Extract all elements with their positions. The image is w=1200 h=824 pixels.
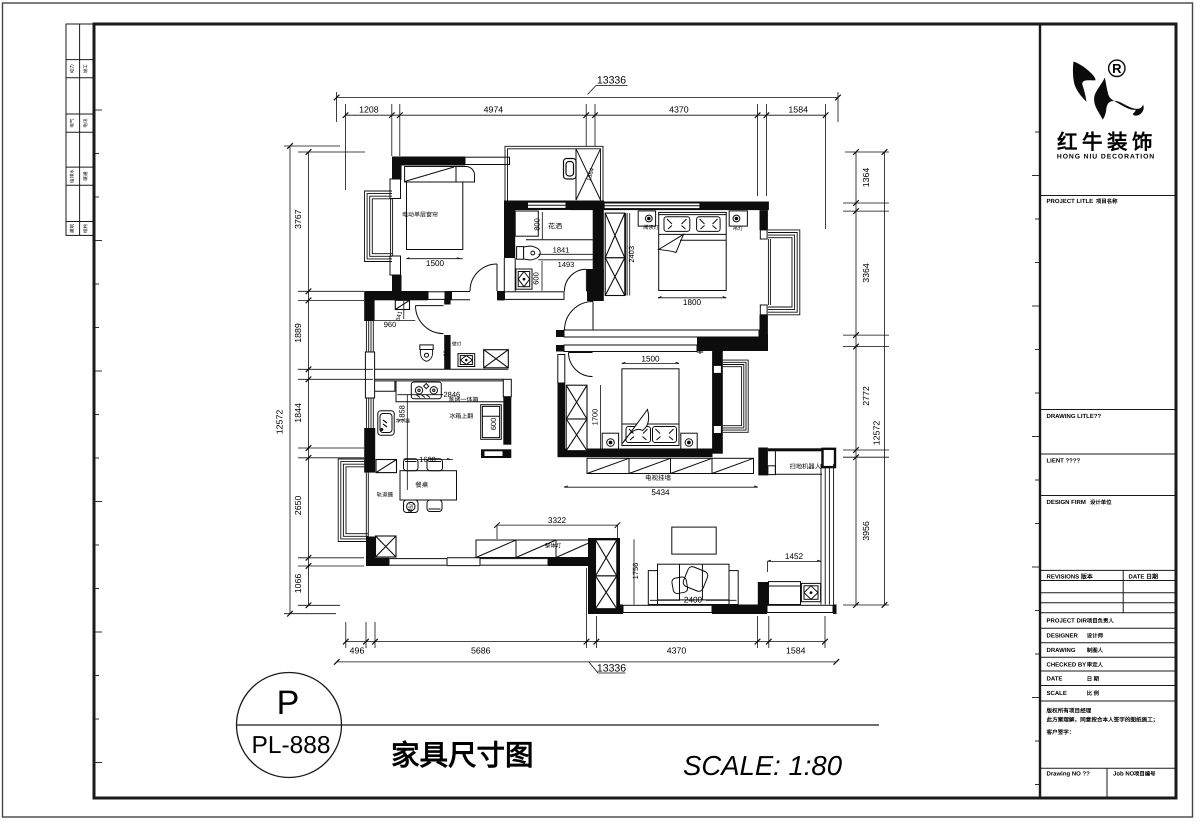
svg-text:1493: 1493 — [558, 260, 575, 269]
svg-text:客户签字：: 客户签字： — [1046, 729, 1075, 736]
svg-text:餐桌: 餐桌 — [415, 481, 429, 489]
svg-text:1452: 1452 — [785, 552, 804, 561]
svg-text:PROJECT DIR: PROJECT DIR — [1047, 618, 1088, 625]
svg-text:DRAWING: DRAWING — [1047, 647, 1076, 654]
svg-text:动力: 动力 — [70, 64, 75, 74]
svg-text:DESIGN FIRM: DESIGN FIRM — [1047, 499, 1086, 506]
svg-text:竣工: 竣工 — [83, 64, 88, 74]
svg-text:1364: 1364 — [861, 168, 871, 188]
svg-text:暖通: 暖通 — [83, 171, 88, 181]
svg-text:3364: 3364 — [861, 263, 871, 283]
svg-text:13336: 13336 — [597, 75, 626, 87]
svg-text:4370: 4370 — [667, 646, 687, 656]
svg-text:DESIGNER: DESIGNER — [1047, 633, 1079, 640]
svg-text:项目负责人: 项目负责人 — [1087, 618, 1115, 625]
svg-text:轨道摄: 轨道摄 — [377, 492, 394, 499]
svg-text:1841: 1841 — [553, 246, 570, 255]
svg-text:4370: 4370 — [669, 105, 689, 115]
svg-text:项目编号: 项目编号 — [1134, 771, 1156, 778]
svg-text:3322: 3322 — [548, 516, 567, 525]
svg-text:4974: 4974 — [484, 105, 504, 115]
svg-text:电讯: 电讯 — [83, 118, 88, 128]
svg-text:SCALE: 1:80: SCALE: 1:80 — [683, 750, 843, 781]
svg-text:吊灯: 吊灯 — [733, 225, 743, 232]
svg-text:DATE 日期: DATE 日期 — [1129, 573, 1159, 581]
svg-text:日 期: 日 期 — [1087, 676, 1100, 683]
svg-text:电气: 电气 — [70, 118, 75, 128]
svg-text:1208: 1208 — [359, 105, 379, 115]
svg-text:项目名称: 项目名称 — [1096, 198, 1118, 205]
svg-text:HONG NIU DECORATION: HONG NIU DECORATION — [1057, 154, 1155, 161]
svg-text:扫地机器人: 扫地机器人 — [790, 462, 822, 470]
svg-text:此方案理解，同意按合本人签字的图纸施工；: 此方案理解，同意按合本人签字的图纸施工； — [1047, 717, 1159, 724]
svg-text:审定人: 审定人 — [1087, 662, 1104, 669]
svg-text:Drawing NO ??: Drawing NO ?? — [1047, 771, 1091, 778]
svg-text:3956: 3956 — [861, 521, 871, 541]
svg-text:2403: 2403 — [627, 246, 636, 263]
svg-text:冰箱上翻: 冰箱上翻 — [449, 412, 473, 420]
svg-text:3767: 3767 — [293, 209, 303, 229]
svg-text:1066: 1066 — [293, 574, 303, 594]
svg-text:净水器: 净水器 — [396, 418, 411, 425]
svg-text:设计师: 设计师 — [1087, 633, 1104, 640]
svg-text:PROJECT LITLE: PROJECT LITLE — [1047, 198, 1094, 205]
svg-text:版权所有项目经理: 版权所有项目经理 — [1047, 708, 1092, 715]
svg-text:REVISIONS 版本: REVISIONS 版本 — [1047, 573, 1094, 581]
svg-text:960: 960 — [384, 320, 397, 329]
svg-text:600: 600 — [489, 418, 498, 431]
svg-text:Job NO: Job NO — [1113, 771, 1135, 778]
svg-text:1500: 1500 — [641, 355, 660, 364]
svg-text:5434: 5434 — [651, 488, 670, 497]
svg-text:13336: 13336 — [597, 663, 626, 675]
svg-text:1756: 1756 — [631, 563, 640, 580]
svg-text:比 例: 比 例 — [1087, 690, 1100, 697]
svg-text:设计单位: 设计单位 — [1090, 499, 1112, 506]
svg-text:LIENT ????: LIENT ???? — [1047, 458, 1081, 465]
svg-text:结构: 结构 — [83, 223, 88, 233]
svg-text:1600: 1600 — [419, 455, 436, 464]
svg-text:电动单层窗帘: 电动单层窗帘 — [402, 211, 438, 219]
svg-text:DATE: DATE — [1047, 676, 1063, 683]
svg-text:PL-888: PL-888 — [251, 732, 330, 759]
svg-text:阅读灯: 阅读灯 — [643, 224, 659, 231]
svg-text:花洒: 花洒 — [548, 222, 562, 230]
svg-text:2400: 2400 — [684, 596, 703, 605]
svg-text:12572: 12572 — [872, 421, 882, 446]
svg-text:壁灯: 壁灯 — [452, 341, 462, 348]
svg-text:SCALE: SCALE — [1047, 690, 1067, 697]
svg-text:建筑: 建筑 — [70, 223, 75, 233]
svg-text:整体灯: 整体灯 — [545, 543, 562, 550]
svg-text:CHECKED BY: CHECKED BY — [1047, 662, 1087, 669]
svg-text:家具尺寸图: 家具尺寸图 — [391, 740, 534, 772]
svg-text:蒸烤一体箱: 蒸烤一体箱 — [449, 395, 479, 403]
svg-text:1500: 1500 — [426, 259, 445, 268]
svg-text:1800: 1800 — [683, 298, 702, 307]
svg-text:12572: 12572 — [275, 410, 285, 435]
svg-text:红牛装饰: 红牛装饰 — [1057, 131, 1157, 154]
svg-text:600: 600 — [532, 272, 541, 285]
svg-text:2772: 2772 — [861, 386, 871, 406]
svg-text:2650: 2650 — [293, 496, 303, 516]
svg-text:DRAWING LITLE??: DRAWING LITLE?? — [1047, 413, 1102, 420]
svg-text:电视挂墙: 电视挂墙 — [645, 474, 672, 482]
svg-text:R: R — [1112, 61, 1122, 76]
svg-text:给排水: 给排水 — [70, 169, 75, 183]
svg-text:1700: 1700 — [590, 409, 599, 426]
svg-text:制图人: 制图人 — [1087, 647, 1104, 654]
svg-text:5686: 5686 — [471, 646, 491, 656]
svg-text:1889: 1889 — [293, 323, 303, 343]
svg-text:800: 800 — [533, 218, 542, 231]
svg-text:1584: 1584 — [786, 646, 806, 656]
svg-text:96: 96 — [443, 351, 449, 357]
svg-text:1584: 1584 — [788, 105, 808, 115]
svg-text:1844: 1844 — [293, 403, 303, 423]
svg-text:P: P — [277, 684, 300, 722]
svg-text:496: 496 — [350, 646, 365, 656]
